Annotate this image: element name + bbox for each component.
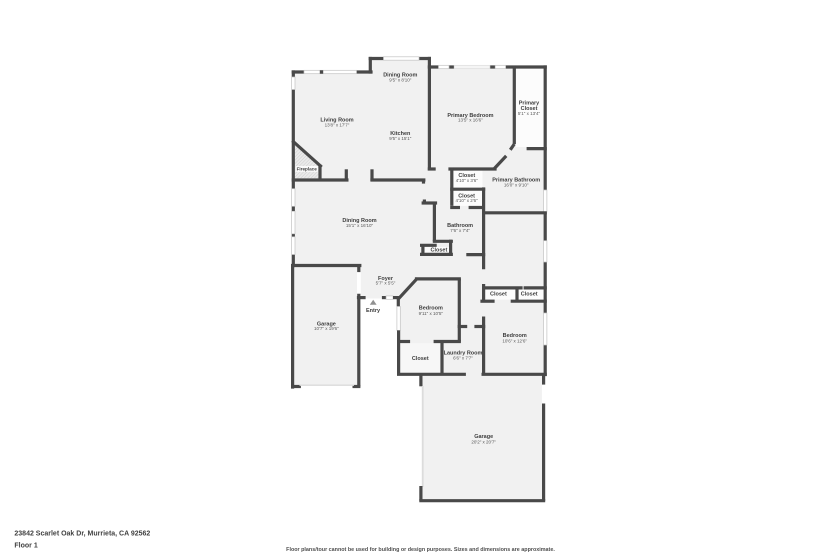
svg-text:9'5" x 8'10": 9'5" x 8'10" [389, 77, 412, 82]
svg-text:4'10" x 3'6": 4'10" x 3'6" [456, 178, 479, 183]
svg-text:13'8" x 17'7": 13'8" x 17'7" [325, 122, 350, 127]
svg-text:20'2" x 20'7": 20'2" x 20'7" [471, 440, 496, 445]
svg-text:6'6" x 7'7": 6'6" x 7'7" [453, 355, 473, 360]
svg-text:13'5" x 16'6": 13'5" x 16'6" [458, 118, 483, 123]
svg-text:10'6" x 12'6": 10'6" x 12'6" [502, 338, 527, 343]
svg-text:Entry: Entry [366, 308, 381, 314]
svg-text:23842 Scarlet Oak Dr, Murrieta: 23842 Scarlet Oak Dr, Murrieta, CA 92562 [14, 531, 150, 538]
svg-text:15'1" x 16'10": 15'1" x 16'10" [346, 223, 374, 228]
svg-text:Closet: Closet [412, 356, 429, 362]
svg-text:4'10" x 2'6": 4'10" x 2'6" [456, 198, 479, 203]
svg-text:Floor 1: Floor 1 [14, 543, 37, 550]
svg-text:16'0" x 9'10": 16'0" x 9'10" [504, 183, 529, 188]
svg-text:5'7" x 5'5": 5'7" x 5'5" [376, 281, 396, 286]
svg-text:7'6" x 7'4": 7'6" x 7'4" [450, 228, 470, 233]
svg-text:Floor plans/tour cannot be use: Floor plans/tour cannot be used for buil… [286, 547, 555, 553]
svg-text:Fireplace: Fireplace [297, 167, 318, 172]
svg-text:9'5" x 15'1": 9'5" x 15'1" [389, 136, 412, 141]
svg-text:9'11" x 10'5": 9'11" x 10'5" [419, 311, 444, 316]
svg-text:Closet: Closet [521, 292, 538, 298]
svg-text:Closet: Closet [430, 248, 447, 254]
svg-text:Closet: Closet [490, 292, 507, 298]
svg-text:10'7" x 19'6": 10'7" x 19'6" [314, 326, 339, 331]
svg-text:5'1" x 13'4": 5'1" x 13'4" [518, 111, 541, 116]
